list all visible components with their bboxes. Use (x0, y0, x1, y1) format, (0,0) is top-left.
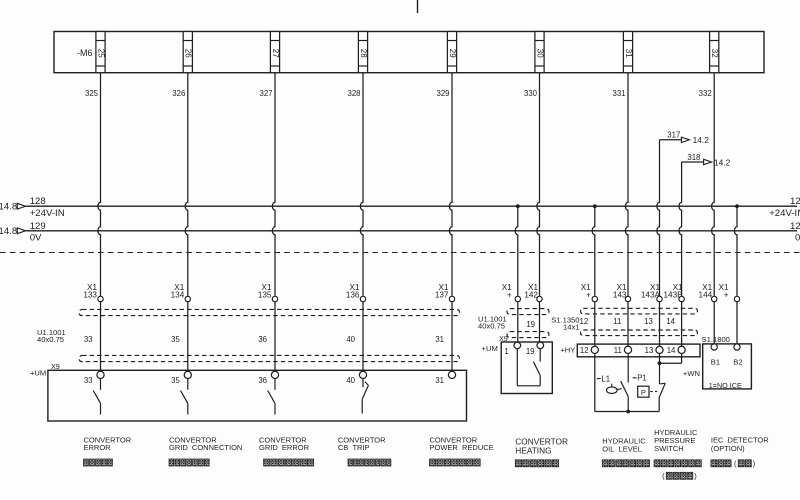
svg-text:40: 40 (346, 376, 355, 385)
svg-text:317: 317 (667, 131, 680, 140)
svg-text:134: 134 (171, 291, 185, 300)
svg-text:327: 327 (259, 89, 272, 98)
svg-text:31: 31 (624, 49, 633, 58)
svg-text:142: 142 (524, 291, 538, 300)
svg-text:25: 25 (96, 49, 105, 58)
svg-text:S1.1800: S1.1800 (702, 335, 730, 344)
svg-text:326: 326 (172, 89, 185, 98)
svg-text:33: 33 (84, 335, 93, 344)
svg-text:14x1: 14x1 (563, 322, 579, 331)
svg-text:(: ( (734, 459, 737, 468)
svg-text:329: 329 (436, 89, 449, 98)
svg-text:128: 128 (790, 196, 800, 207)
svg-text:14.8: 14.8 (0, 226, 17, 237)
svg-text:35: 35 (171, 376, 180, 385)
svg-text:133: 133 (83, 291, 97, 300)
svg-text:ERROR: ERROR (84, 443, 112, 452)
svg-text:+HY: +HY (560, 345, 575, 354)
svg-text:B1: B1 (711, 357, 720, 366)
svg-text:328: 328 (347, 89, 360, 98)
svg-text:135: 135 (258, 291, 272, 300)
svg-text:14.2: 14.2 (693, 135, 710, 145)
svg-text:+: + (724, 291, 729, 300)
svg-text:33: 33 (84, 376, 93, 385)
svg-text:-M6: -M6 (77, 48, 93, 58)
svg-text:27: 27 (271, 49, 280, 58)
svg-text:129: 129 (30, 221, 46, 232)
svg-text:129: 129 (790, 221, 800, 232)
svg-text:OIL LEVEL: OIL LEVEL (602, 445, 642, 454)
svg-text:+: + (507, 291, 512, 300)
svg-text:P1: P1 (637, 374, 647, 383)
svg-text:40x0.75: 40x0.75 (478, 321, 505, 330)
svg-text:X9: X9 (499, 334, 508, 343)
svg-text:X9: X9 (51, 362, 60, 371)
svg-text:30: 30 (535, 49, 544, 58)
svg-text:0V: 0V (795, 233, 800, 244)
svg-text:137: 137 (435, 291, 449, 300)
svg-text:36: 36 (258, 376, 267, 385)
svg-text:+: + (586, 291, 591, 300)
svg-text:12: 12 (580, 317, 589, 326)
svg-text:13: 13 (645, 346, 654, 355)
svg-text:SWITCH: SWITCH (654, 444, 684, 453)
svg-text:B2: B2 (733, 357, 742, 366)
svg-text:+UM: +UM (30, 368, 46, 377)
svg-text:143: 143 (613, 291, 627, 300)
svg-text:P: P (641, 388, 646, 397)
svg-text:): ) (753, 459, 756, 468)
svg-text:12: 12 (580, 346, 589, 355)
svg-text:128: 128 (30, 196, 46, 207)
svg-text:GRID CONNECTION: GRID CONNECTION (169, 443, 242, 452)
svg-text:(OPTION): (OPTION) (711, 444, 745, 453)
svg-text:1: 1 (504, 347, 508, 356)
svg-text:26: 26 (184, 49, 193, 58)
svg-text:14: 14 (666, 317, 675, 326)
svg-text:19: 19 (526, 347, 535, 356)
svg-text:+WN: +WN (683, 369, 700, 378)
svg-text:POWER REDUCE: POWER REDUCE (430, 443, 494, 452)
svg-text:332: 332 (699, 89, 712, 98)
svg-text:32: 32 (710, 49, 719, 58)
svg-text:19: 19 (526, 320, 535, 329)
svg-text:1=NO ICE: 1=NO ICE (709, 381, 742, 390)
svg-text:31: 31 (435, 376, 444, 385)
svg-text:13: 13 (644, 317, 653, 326)
svg-text:11: 11 (613, 317, 621, 326)
svg-text:): ) (694, 472, 697, 481)
svg-text:136: 136 (346, 291, 360, 300)
svg-text:318: 318 (687, 153, 700, 162)
svg-text:330: 330 (524, 89, 538, 98)
svg-text:40: 40 (346, 335, 355, 344)
svg-text:HEATING: HEATING (515, 446, 551, 456)
svg-text:331: 331 (612, 89, 625, 98)
svg-text:11: 11 (614, 346, 622, 355)
svg-text:(: ( (662, 472, 665, 481)
svg-text:28: 28 (359, 49, 368, 58)
svg-text:+UM: +UM (482, 344, 498, 353)
svg-text:36: 36 (258, 335, 267, 344)
svg-text:CB TRIP: CB TRIP (338, 443, 370, 452)
svg-text:40x0.75: 40x0.75 (37, 335, 64, 344)
svg-text:31: 31 (435, 335, 444, 344)
svg-text:14.2: 14.2 (714, 157, 731, 167)
svg-text:325: 325 (85, 89, 99, 98)
svg-text:+24V-IN: +24V-IN (769, 208, 800, 219)
svg-text:0V: 0V (30, 233, 42, 244)
svg-text:+24V-IN: +24V-IN (30, 208, 65, 219)
svg-text:35: 35 (171, 335, 180, 344)
svg-text:144: 144 (699, 291, 713, 300)
svg-text:GRID ERROR: GRID ERROR (259, 443, 310, 452)
svg-text:L1: L1 (601, 374, 610, 383)
svg-text:IEC DETECTOR: IEC DETECTOR (711, 435, 769, 444)
svg-text:14.8: 14.8 (0, 201, 17, 212)
svg-text:14: 14 (667, 346, 676, 355)
svg-text:29: 29 (448, 49, 457, 58)
